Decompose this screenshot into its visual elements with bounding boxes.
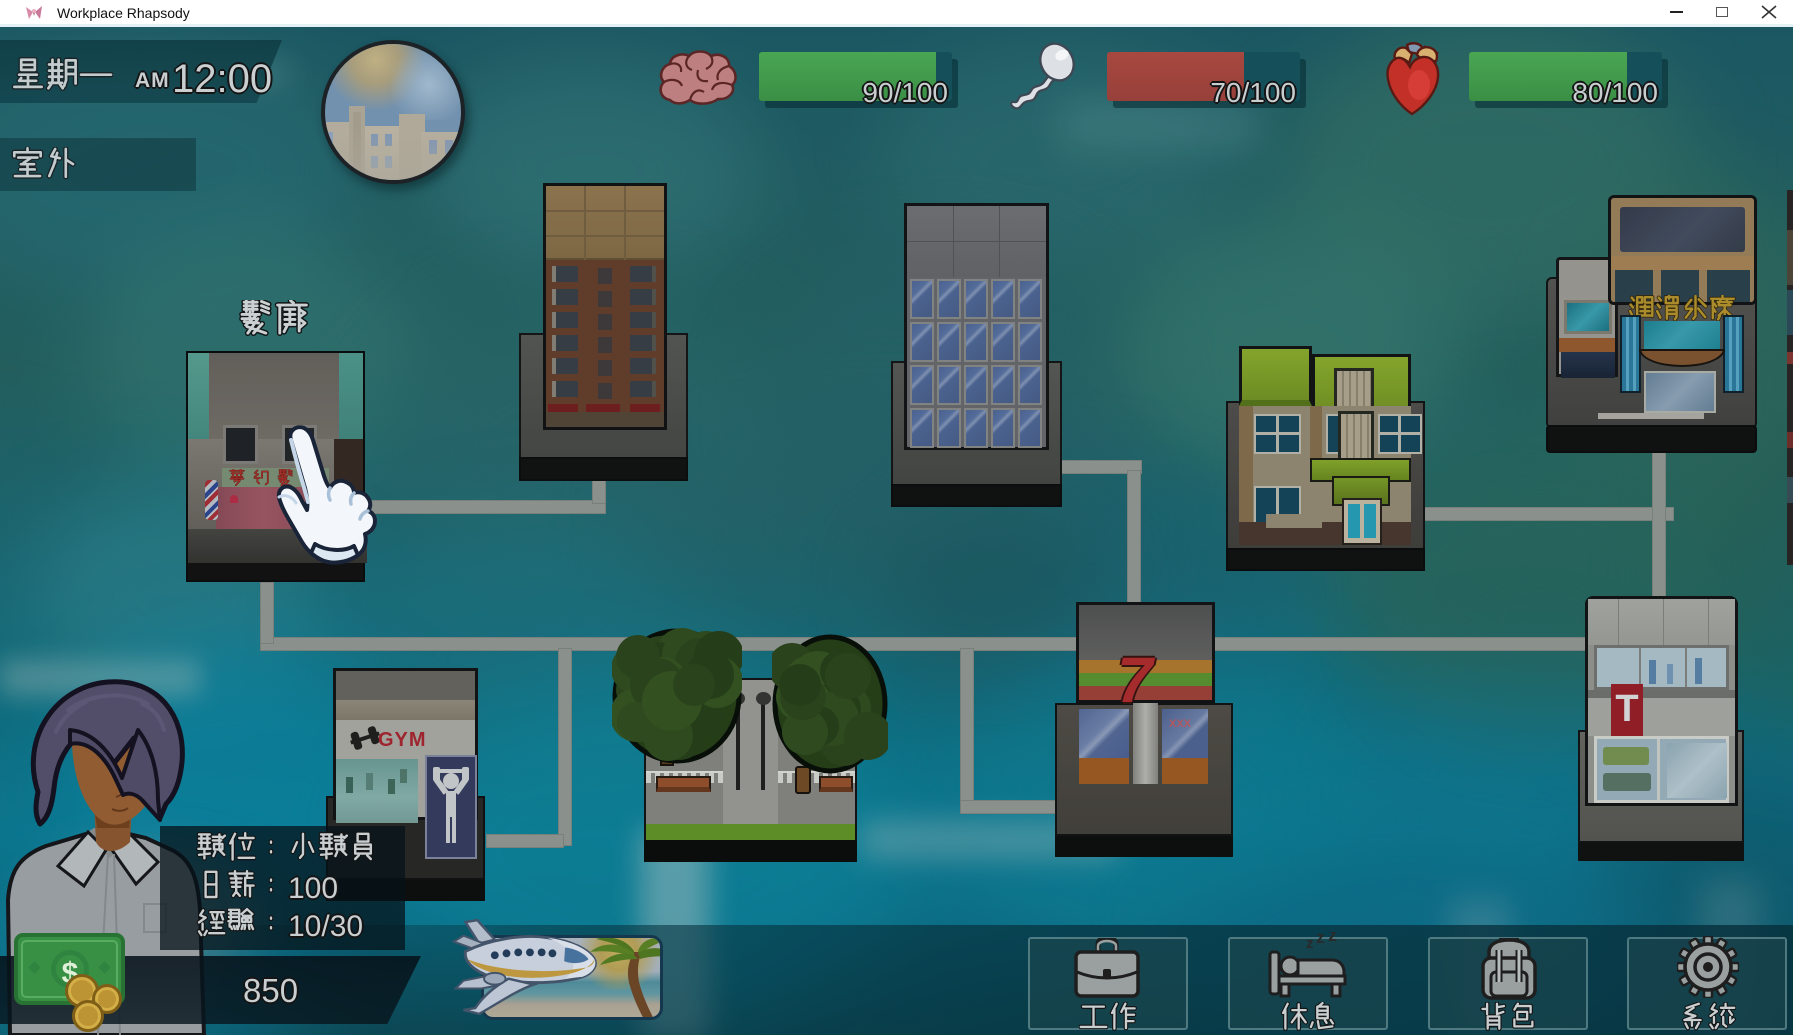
- svg-text:z: z: [1328, 932, 1337, 945]
- svg-text:z: z: [1306, 935, 1314, 952]
- svg-text:z: z: [1316, 932, 1325, 947]
